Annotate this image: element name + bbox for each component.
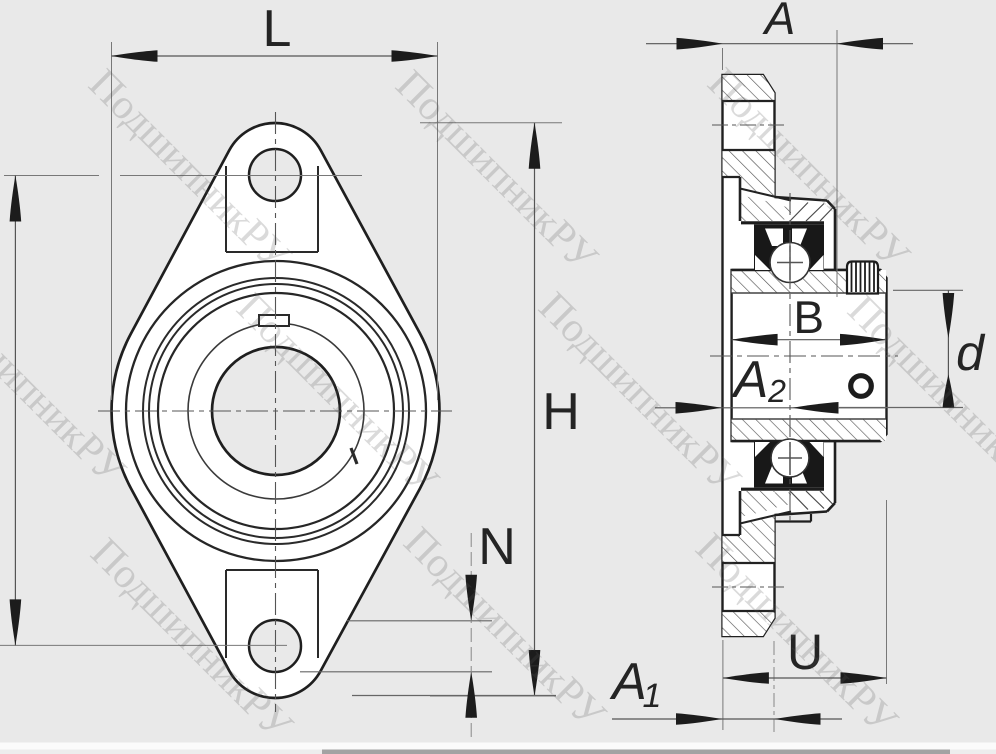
svg-text:B: B — [793, 291, 824, 343]
svg-text:A: A — [762, 0, 796, 44]
svg-text:L: L — [263, 0, 292, 58]
svg-text:d: d — [956, 325, 986, 381]
svg-text:1: 1 — [643, 677, 662, 715]
svg-text:A: A — [731, 351, 769, 409]
svg-text:A: A — [609, 653, 647, 711]
svg-text:H: H — [542, 383, 580, 441]
svg-text:N: N — [478, 518, 516, 576]
svg-text:2: 2 — [767, 373, 786, 409]
